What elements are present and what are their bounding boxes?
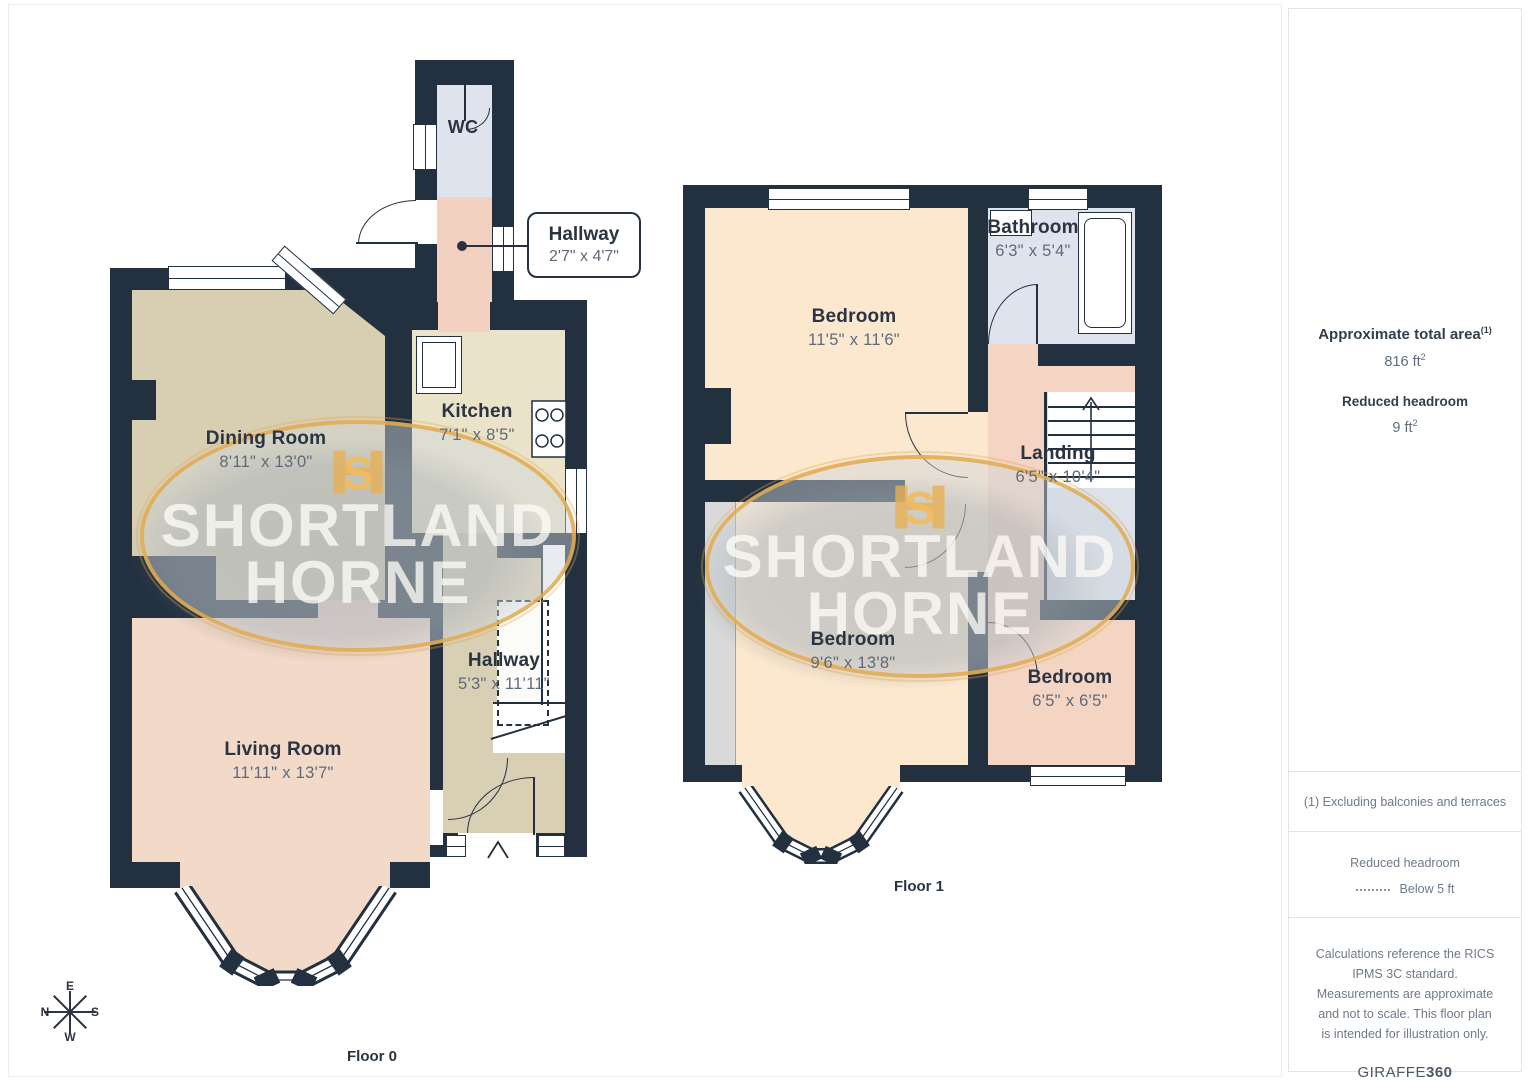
room-label-kitchen: Kitchen 7'1" x 8'5" [439,401,514,445]
room-label-living: Living Room 11'11" x 13'7" [224,739,341,783]
footnote: (1) Excluding balconies and terraces [1304,795,1506,809]
chimney-breast [132,380,156,420]
info-sidebar: Approximate total area(1) 816 ft2 Reduce… [1288,8,1522,1072]
compass-north: N [41,1005,50,1019]
doorway [988,344,1038,366]
disclaimer-text: Calculations reference the RICS IPMS 3C … [1313,944,1497,1044]
room-label-wc: WC [448,117,478,138]
window [768,188,910,210]
room-label-bedroom-small: Bedroom 6'5" x 6'5" [1028,667,1113,711]
room-label-bedroom-rear: Bedroom 9'6" x 13'8" [811,629,896,673]
chimney-breast [705,388,731,444]
footnote-section: (1) Excluding balconies and terraces [1289,771,1521,831]
entrance-arrow-icon [484,838,512,860]
legend-section: Reduced headroom Below 5 ft [1289,831,1521,917]
legend-title: Reduced headroom [1289,856,1521,870]
stair-line [493,702,565,704]
floor1-label: Floor 1 [894,878,944,895]
bay-opening [180,862,390,888]
room-label-dining: Dining Room 8'11" x 13'0" [206,428,326,472]
callout-entry-hallway: Hallway 2'7" x 4'7" [527,212,641,278]
room-label-hallway: Hallway 5'3" x 11'11" [458,650,550,694]
headroom-label: Reduced headroom [1289,394,1521,409]
window [168,266,286,290]
compass-west: W [64,1030,75,1044]
window [413,124,437,170]
dashed-line-icon [1356,889,1390,891]
doorway [438,300,490,332]
doorway [430,790,443,845]
bay-window [168,886,403,986]
total-area-value: 816 ft2 [1289,352,1521,370]
window [1028,188,1088,210]
window [492,226,514,272]
total-area-label: Approximate total area(1) [1289,325,1521,343]
legend-row: Below 5 ft [1289,882,1521,896]
window [1030,766,1126,786]
giraffe360-logo: GIRAFFE360 [1289,1064,1521,1080]
floorplan-page: WC Dining Room 8'11" x 13'0" Kitchen 7'1… [0,0,1527,1080]
area-summary-section: Approximate total area(1) 816 ft2 Reduce… [1289,9,1521,771]
bay-opening [742,765,900,788]
floor0-label: Floor 0 [347,1048,397,1065]
room-label-bathroom: Bathroom 6'3" x 5'4" [987,217,1078,261]
window [446,835,466,857]
room-label-landing: Landing 6'5" x 10'4" [1016,443,1101,487]
bay-window [735,786,907,864]
headroom-value: 9 ft2 [1289,418,1521,436]
watermark-floor1: H S SHORTLAND HORNE [705,455,1135,678]
room-label-bedroom-front: Bedroom 11'5" x 11'6" [808,306,900,350]
window [538,835,565,857]
callout-leader [466,245,527,247]
sink-unit-icon [416,336,462,394]
doorway [415,200,437,244]
disclaimer-section: Calculations reference the RICS IPMS 3C … [1289,917,1521,1072]
compass-south: S [91,1005,99,1019]
watermark-text: SHORTLAND HORNE [705,455,1135,678]
bathtub-icon [1078,212,1132,334]
compass-east: E [66,979,74,993]
